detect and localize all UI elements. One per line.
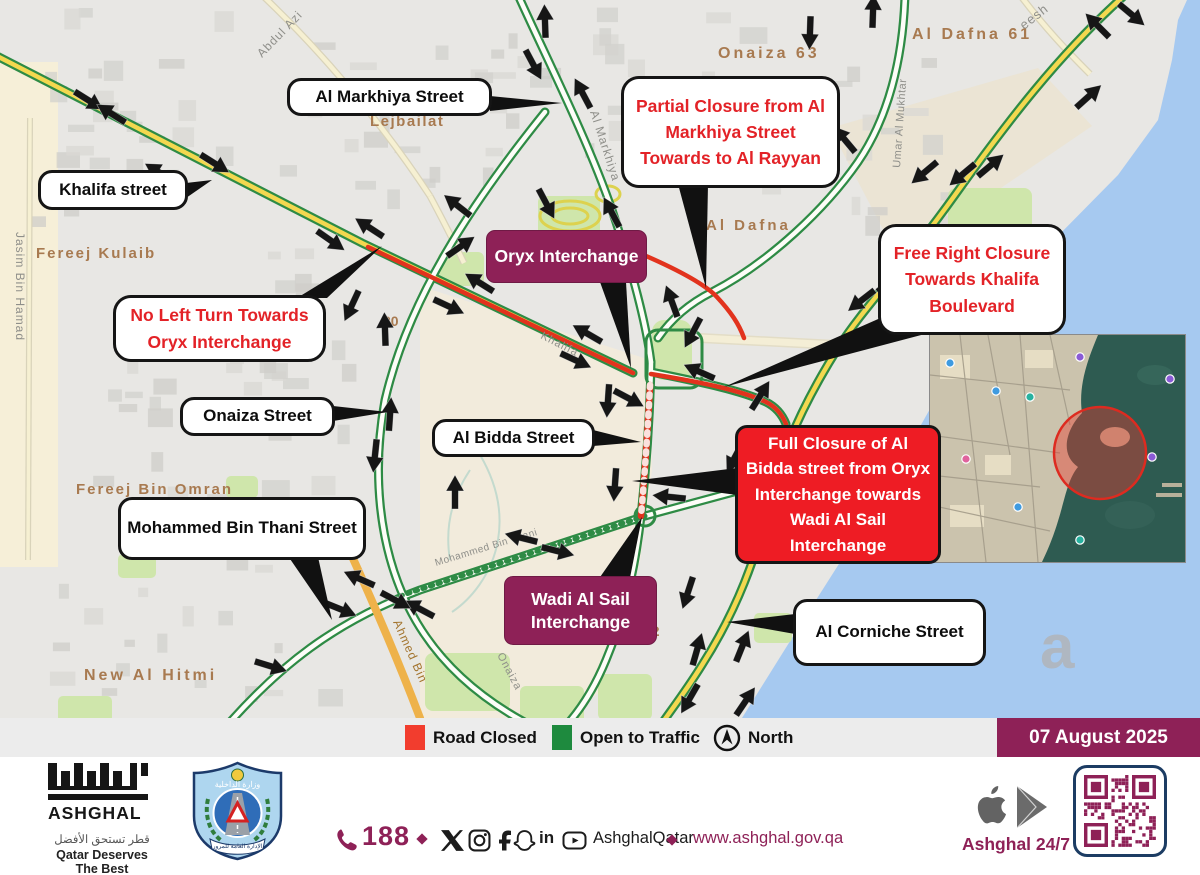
north-label: North xyxy=(748,728,793,748)
building-block xyxy=(706,12,731,23)
building-block xyxy=(255,565,273,573)
open-to-traffic-label: Open to Traffic xyxy=(580,728,700,748)
building-block xyxy=(66,146,94,156)
building-block xyxy=(345,139,359,152)
building-block xyxy=(436,46,449,60)
building-block xyxy=(88,69,102,79)
open-to-traffic-swatch xyxy=(552,725,572,750)
callout-partial-closure: Partial Closure from Al Markhiya Street … xyxy=(621,76,840,188)
closure-area-circle xyxy=(1054,407,1146,499)
separator-diamond xyxy=(416,833,427,844)
building-block xyxy=(157,634,167,653)
building-block xyxy=(332,340,346,360)
callout-wadi-al-sail-interchange: Wadi Al Sail Interchange xyxy=(504,576,657,645)
building-block xyxy=(50,672,76,686)
building-block xyxy=(342,364,357,382)
building-block xyxy=(847,67,860,82)
callout-label: Al Bidda Street xyxy=(453,428,575,448)
district-label: New Al Hitmi xyxy=(84,667,217,684)
legend-bar: Road Closed Open to Traffic North 07 Aug… xyxy=(0,718,1200,757)
ashghal-tagline-arabic: قطر تستحق الأفضل xyxy=(48,832,156,846)
date-text: 07 August 2025 xyxy=(1029,727,1168,749)
building-block xyxy=(486,148,503,157)
building-block xyxy=(599,28,611,46)
building-block xyxy=(53,643,70,652)
building-block xyxy=(868,207,888,215)
callout-al-corniche-street: Al Corniche Street xyxy=(793,599,986,666)
callout-label: Khalifa street xyxy=(59,180,167,200)
building-block xyxy=(923,135,943,155)
district-label: Fereej Kulaib xyxy=(36,245,156,262)
building-block xyxy=(275,643,283,653)
building-block xyxy=(215,11,234,32)
building-block xyxy=(318,689,343,707)
phone-icon xyxy=(333,827,359,853)
building-block xyxy=(506,113,519,129)
youtube-icon xyxy=(562,830,587,851)
building-block xyxy=(605,44,624,64)
closure-note: Free Right Closure Towards Khalifa Boule… xyxy=(887,240,1057,319)
instagram-icon xyxy=(468,829,491,852)
callout-label: Mohammed Bin Thani Street xyxy=(127,518,357,538)
district-label: Onaiza 63 xyxy=(718,45,820,62)
callout-al-markhiya-street: Al Markhiya Street xyxy=(287,78,492,116)
callout-no-left-turn: No Left Turn Towards Oryx Interchange xyxy=(113,295,326,362)
building-block xyxy=(125,392,143,398)
building-block xyxy=(597,8,618,23)
building-block xyxy=(268,252,281,260)
badge-arabic-top: وزارة الداخلية xyxy=(215,780,261,789)
building-block xyxy=(244,382,262,396)
building-block xyxy=(865,216,880,236)
inset-water-patch xyxy=(1105,501,1155,529)
building-block xyxy=(119,404,137,412)
traffic-department-badge-icon: وزارة الداخلية الإدارة العامة للمرور xyxy=(190,761,285,861)
road-closed-label: Road Closed xyxy=(433,728,537,748)
apple-app-store-icon xyxy=(968,781,1008,829)
ashghal-logo-text: ASHGHAL xyxy=(48,803,142,823)
callout-full-closure: Full Closure of Al Bidda street from Ory… xyxy=(735,425,941,564)
callout-mohammed-bin-thani-street: Mohammed Bin Thani Street xyxy=(118,497,366,560)
building-block xyxy=(387,189,400,209)
callout-onaiza-street: Onaiza Street xyxy=(180,397,335,436)
building-block xyxy=(295,248,314,259)
ashghal-kufic-logo-icon: ASHGHAL xyxy=(48,763,148,825)
footer: ASHGHAL قطر تستحق الأفضل Qatar Deserves … xyxy=(0,757,1200,875)
building-block xyxy=(79,8,93,18)
building-block xyxy=(124,640,134,647)
interchange-label: Oryx Interchange xyxy=(495,245,639,268)
snapchat-icon xyxy=(513,829,536,852)
building-block xyxy=(338,425,350,445)
building-block xyxy=(430,167,441,183)
closure-note: Full Closure of Al Bidda street from Ory… xyxy=(744,431,932,559)
website-url: www.ashghal.gov.qa xyxy=(693,829,843,848)
building-block xyxy=(264,690,283,696)
building-block xyxy=(59,584,69,599)
building-block xyxy=(138,588,148,597)
callout-khalifa-street: Khalifa street xyxy=(38,170,188,210)
building-block xyxy=(64,9,80,30)
building-block xyxy=(90,158,110,170)
x-twitter-icon xyxy=(440,829,464,852)
building-block xyxy=(159,59,185,69)
district-label: Al Dafna 61 xyxy=(912,26,1032,43)
linkedin-icon: in xyxy=(539,828,554,848)
building-block xyxy=(108,389,122,401)
building-block xyxy=(283,378,309,389)
building-block xyxy=(922,58,938,68)
north-compass-icon xyxy=(712,723,742,753)
interchange-label: Wadi Al Sail Interchange xyxy=(511,588,650,634)
building-block xyxy=(355,181,376,190)
building-block xyxy=(218,611,233,626)
closure-note: No Left Turn Towards Oryx Interchange xyxy=(122,302,317,355)
building-block xyxy=(312,476,336,495)
building-block xyxy=(226,363,242,373)
building-block xyxy=(148,408,173,427)
watermark-label: a xyxy=(1040,613,1075,682)
callout-free-right-closure: Free Right Closure Towards Khalifa Boule… xyxy=(878,224,1066,335)
building-block xyxy=(350,62,377,70)
app-name: Ashghal 24/7 xyxy=(962,834,1070,855)
callout-al-bidda-street: Al Bidda Street xyxy=(432,419,595,457)
building-block xyxy=(852,197,861,215)
building-block xyxy=(32,216,46,227)
building-block xyxy=(153,379,176,395)
building-block xyxy=(509,33,518,48)
building-block xyxy=(68,125,94,132)
date-badge: 07 August 2025 xyxy=(997,718,1200,757)
street-name-label: Jasim Bin Hamad xyxy=(13,232,27,341)
building-block xyxy=(102,688,117,696)
closure-note: Partial Closure from Al Markhiya Street … xyxy=(630,93,831,172)
satellite-inset xyxy=(930,335,1185,562)
building-block xyxy=(104,61,123,81)
facebook-icon xyxy=(495,829,512,852)
building-block xyxy=(295,274,312,292)
map-area: Fereej KulaibLejbailatOnaiza 63Al Dafna … xyxy=(0,0,1200,718)
qr-code-image xyxy=(1084,775,1156,847)
district-label: Al Dafna xyxy=(706,217,791,234)
social-handle: AshghalQatar xyxy=(593,829,694,848)
building-block xyxy=(183,606,194,626)
road-closed-swatch xyxy=(405,725,425,750)
building-block xyxy=(740,27,768,44)
building-block xyxy=(84,608,103,625)
building-block xyxy=(608,106,622,115)
building-block xyxy=(151,452,163,472)
qr-code xyxy=(1073,765,1167,857)
building-block xyxy=(491,50,504,59)
callout-label: Al Markhiya Street xyxy=(315,87,463,107)
satellite-inset-image xyxy=(930,335,1185,562)
callout-oryx-interchange: Oryx Interchange xyxy=(486,230,647,283)
badge-arabic-bottom: الإدارة العامة للمرور xyxy=(212,843,263,850)
hotline-number: 188 xyxy=(362,821,410,852)
road-closure-announcement: Fereej KulaibLejbailatOnaiza 63Al Dafna … xyxy=(0,0,1200,875)
building-block xyxy=(280,165,297,177)
callout-label: Al Corniche Street xyxy=(815,622,963,642)
google-play-icon xyxy=(1014,785,1050,829)
district-label: Fereej Bin Omran xyxy=(76,481,233,498)
building-block xyxy=(275,280,295,293)
building-block xyxy=(628,60,645,78)
building-block xyxy=(179,100,197,121)
ashghal-logo: ASHGHAL قطر تستحق الأفضل Qatar Deserves … xyxy=(48,763,156,875)
ashghal-tagline-english: Qatar Deserves The Best xyxy=(48,848,156,875)
callout-label: Onaiza Street xyxy=(203,406,312,426)
